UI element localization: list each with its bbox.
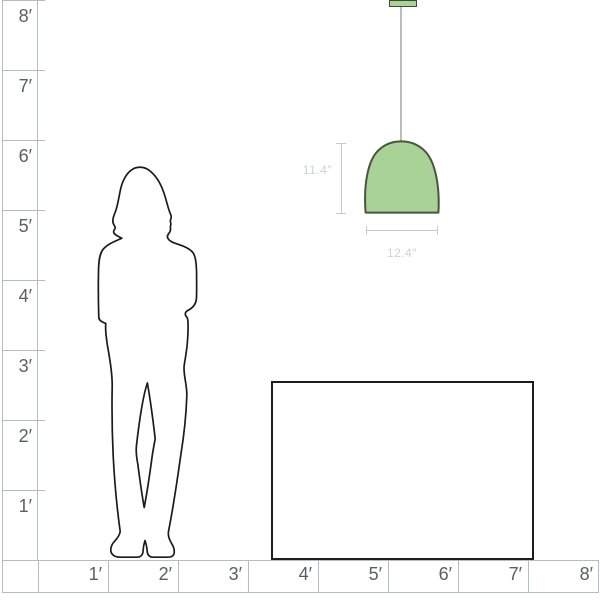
ruler-cell: 3′ [179,561,249,592]
ruler-label: 1′ [89,561,108,583]
ruler-label: 7′ [19,71,37,95]
ruler-cell: 6′ [3,140,37,210]
ruler-tick [38,280,45,281]
ruler-cell: 2′ [3,420,37,490]
ruler-cell: 8′ [3,0,37,70]
width-dimension-label: 12.4″ [372,247,432,259]
pendant-canopy [389,0,417,7]
ruler-tick [38,210,45,211]
ruler-cell: 3′ [3,350,37,420]
pendant-shade-dome [365,141,439,212]
scale-diagram: 8′7′6′5′4′3′2′1′ 1′2′3′4′5′6′7′8′ 11.4″ … [0,0,600,600]
width-dimension-cap-left [366,226,367,235]
ruler-cell: 5′ [3,210,37,280]
ruler-label: 4′ [19,281,37,305]
ruler-label: 5′ [19,211,37,235]
ruler-cell: 6′ [389,561,459,592]
ruler-cell: 7′ [459,561,529,592]
ruler-tick [38,420,45,421]
ruler-cell: 7′ [3,70,37,140]
ruler-label: 2′ [19,421,37,445]
ruler-cell: 4′ [249,561,319,592]
pendant-shade [356,136,446,218]
person-silhouette [90,160,205,560]
person-outline [98,167,196,557]
pendant-cord [400,7,402,142]
ruler-label: 8′ [19,1,37,25]
table-outline [271,381,534,560]
ruler-label: 6′ [439,561,458,583]
height-dimension-cap-top [336,143,346,144]
ruler-corner-cell [3,561,39,592]
ruler-label: 8′ [580,561,599,583]
ruler-label: 6′ [19,141,37,165]
ruler-label: 7′ [509,561,528,583]
ruler-ticks [38,0,46,562]
vertical-ruler: 8′7′6′5′4′3′2′1′ [2,0,38,560]
width-dimension-cap-right [437,226,438,235]
ruler-cell: 4′ [3,280,37,350]
ruler-cell: 1′ [39,561,109,592]
ruler-tick [38,0,45,1]
width-dimension-line [366,230,438,231]
ruler-tick [38,490,45,491]
ruler-tick [38,140,45,141]
ruler-label: 1′ [19,491,37,515]
height-dimension-cap-bottom [336,213,346,214]
horizontal-ruler: 1′2′3′4′5′6′7′8′ [2,560,599,593]
ruler-label: 4′ [299,561,318,583]
height-dimension-label: 11.4″ [270,164,332,176]
height-dimension-line [341,143,342,213]
ruler-label: 3′ [229,561,248,583]
ruler-tick [38,350,45,351]
ruler-cell: 8′ [529,561,599,592]
ruler-label: 5′ [369,561,388,583]
ruler-label: 3′ [19,351,37,375]
ruler-label: 2′ [159,561,178,583]
ruler-cell: 2′ [109,561,179,592]
ruler-tick [38,70,45,71]
ruler-cell: 1′ [3,490,37,560]
ruler-cell: 5′ [319,561,389,592]
